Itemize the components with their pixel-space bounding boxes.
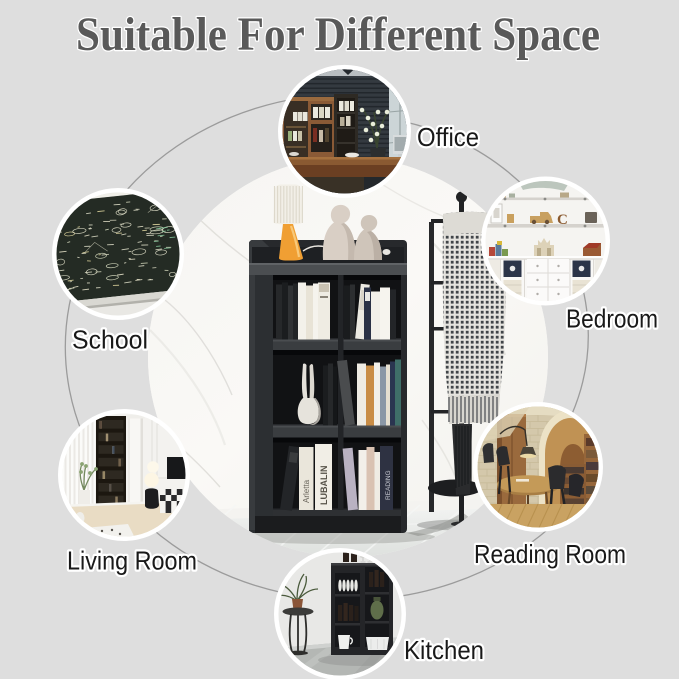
svg-text:Kitchen: Kitchen: [404, 635, 484, 665]
svg-text:Office: Office: [417, 122, 479, 152]
svg-text:Suitable For Different Space: Suitable For Different Space: [76, 8, 600, 61]
svg-text:Arletta: Arletta: [302, 479, 311, 503]
svg-text:Living Room: Living Room: [67, 546, 197, 576]
svg-text:School: School: [72, 325, 148, 355]
svg-text:LUBALIN: LUBALIN: [319, 466, 329, 506]
svg-text:READING: READING: [385, 470, 392, 500]
svg-text:Reading Room: Reading Room: [474, 539, 626, 569]
svg-text:Bedroom: Bedroom: [566, 304, 658, 334]
